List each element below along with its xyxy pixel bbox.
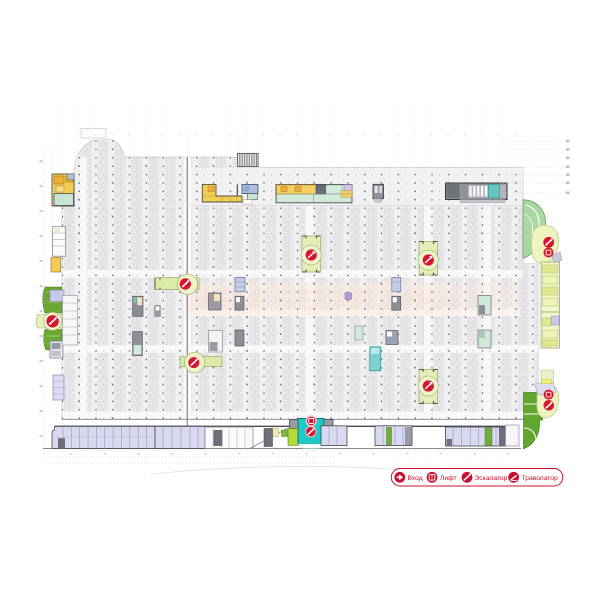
- svg-text:Траволатор: Траволатор: [522, 475, 558, 482]
- svg-text:Лифт: Лифт: [440, 475, 457, 482]
- svg-text:Вход: Вход: [408, 475, 423, 482]
- svg-text:Эскалатор: Эскалатор: [475, 475, 508, 482]
